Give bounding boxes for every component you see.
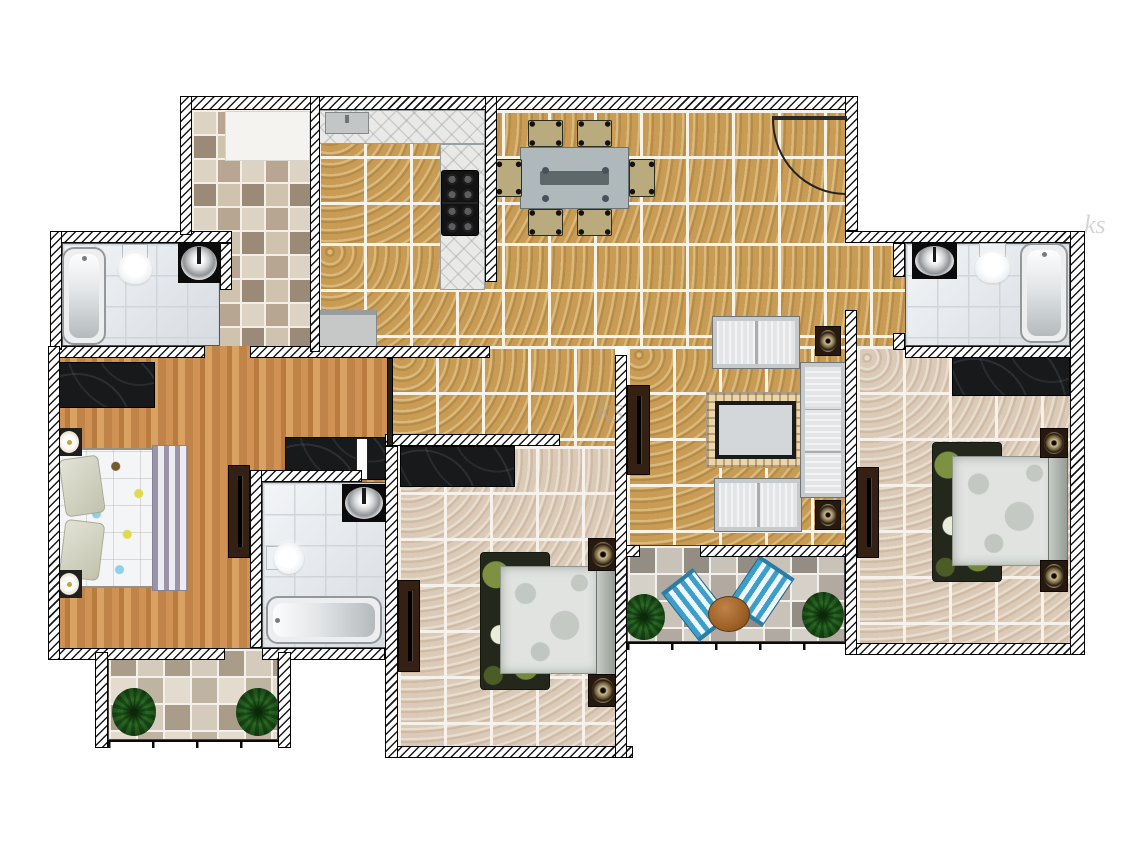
dining-chair-4 — [577, 209, 612, 236]
wall-master-bottom-a — [48, 648, 225, 660]
washbasin-ensuite — [342, 484, 386, 522]
watermark-2: ks — [1084, 210, 1106, 240]
toilet-left — [118, 244, 152, 284]
sofa-three-seater — [800, 362, 846, 498]
wall-bath-right-left-b — [893, 333, 905, 350]
tv-unit-living-room — [627, 385, 650, 475]
bathtub-ensuite — [266, 596, 382, 644]
toilet-right — [975, 243, 1010, 283]
side-table-top — [815, 326, 841, 356]
floor-plan-canvas: ksks — [0, 0, 1128, 855]
bathtub-left — [62, 247, 106, 345]
wall-master-east — [387, 358, 393, 446]
dining-table — [520, 147, 629, 209]
gas-stove — [441, 170, 479, 236]
floor-corridor — [390, 346, 615, 446]
carpet-living-room — [706, 392, 805, 468]
wall-bedroom2-bottom — [385, 746, 633, 758]
wall-ensuite-left — [250, 470, 262, 648]
entrance-doormat — [225, 111, 310, 161]
wall-kitchen-bottom — [250, 346, 490, 358]
dining-chair-3 — [528, 209, 563, 236]
wall-living-bottom-b — [700, 545, 847, 557]
nightstand-bed2-bottom — [588, 674, 618, 707]
wall-corridor-right — [615, 355, 627, 758]
sofa-two-seater-bottom — [714, 478, 802, 532]
railing-balcony-center — [627, 642, 845, 650]
wardrobe-master — [228, 465, 250, 558]
headboard-bed-2 — [596, 560, 616, 678]
master-bed-pillows — [60, 455, 106, 581]
wall-ensuite-top — [250, 470, 362, 482]
master-bed-runner — [152, 445, 188, 591]
wall-master-left — [48, 346, 60, 660]
wall-bath-right-left-a — [893, 243, 905, 277]
bed-2 — [500, 566, 600, 674]
wall-balcony-left-a — [95, 652, 108, 748]
balcony-round-table — [708, 596, 750, 632]
wall-bath-foyer — [220, 243, 232, 290]
plant-balcony-left-1 — [112, 688, 156, 736]
railing-balcony-left — [108, 740, 278, 748]
bathtub-right — [1020, 243, 1068, 343]
nightstand-bed3-top — [1040, 428, 1068, 458]
wall-bath-left-top — [50, 231, 232, 243]
wall-master-top-left — [50, 346, 205, 358]
rug-bedroom-3 — [952, 356, 1070, 396]
dining-chair-2 — [577, 120, 612, 147]
wardrobe-bedroom-2 — [398, 580, 420, 672]
sofa-two-seater-top — [712, 316, 800, 369]
wall-bedroom2-left — [385, 446, 398, 758]
wall-foyer-kitchen — [310, 96, 320, 352]
wall-top — [180, 96, 857, 110]
nightstand-bed3-bottom — [1040, 560, 1068, 592]
headboard-bed-3 — [1048, 452, 1068, 570]
dining-chair-5 — [496, 159, 522, 197]
dining-chair-1 — [528, 120, 563, 147]
wall-bath-left-side — [50, 231, 62, 350]
wall-right-wing-top — [845, 231, 1085, 243]
refrigerator — [318, 310, 377, 350]
bed-3 — [952, 456, 1056, 566]
side-table-bottom — [815, 500, 841, 530]
rug-bedroom-2 — [400, 446, 515, 487]
kitchen-sink — [325, 112, 369, 134]
wall-bedroom2-top — [385, 434, 560, 446]
wall-foyer-left — [180, 96, 192, 235]
wardrobe-bedroom-3 — [857, 467, 879, 558]
dining-chair-6 — [629, 159, 655, 197]
wall-bedroom3-bottom — [845, 643, 1085, 655]
plant-balcony-center-2 — [802, 592, 844, 638]
plant-balcony-center-1 — [623, 594, 665, 640]
wall-balcony-left-b — [278, 652, 291, 748]
wall-living-right — [845, 310, 857, 655]
washbasin-right — [912, 243, 957, 279]
toilet-ensuite — [266, 542, 304, 574]
plant-balcony-left-2 — [236, 688, 280, 736]
washbasin-left — [178, 243, 220, 283]
wall-kitchen-right — [485, 96, 497, 282]
wall-bedroom3-top — [905, 346, 1085, 358]
rug-master-bedroom — [58, 362, 155, 408]
nightstand-bed2-top — [588, 538, 618, 571]
wall-right-exterior — [1070, 231, 1085, 655]
